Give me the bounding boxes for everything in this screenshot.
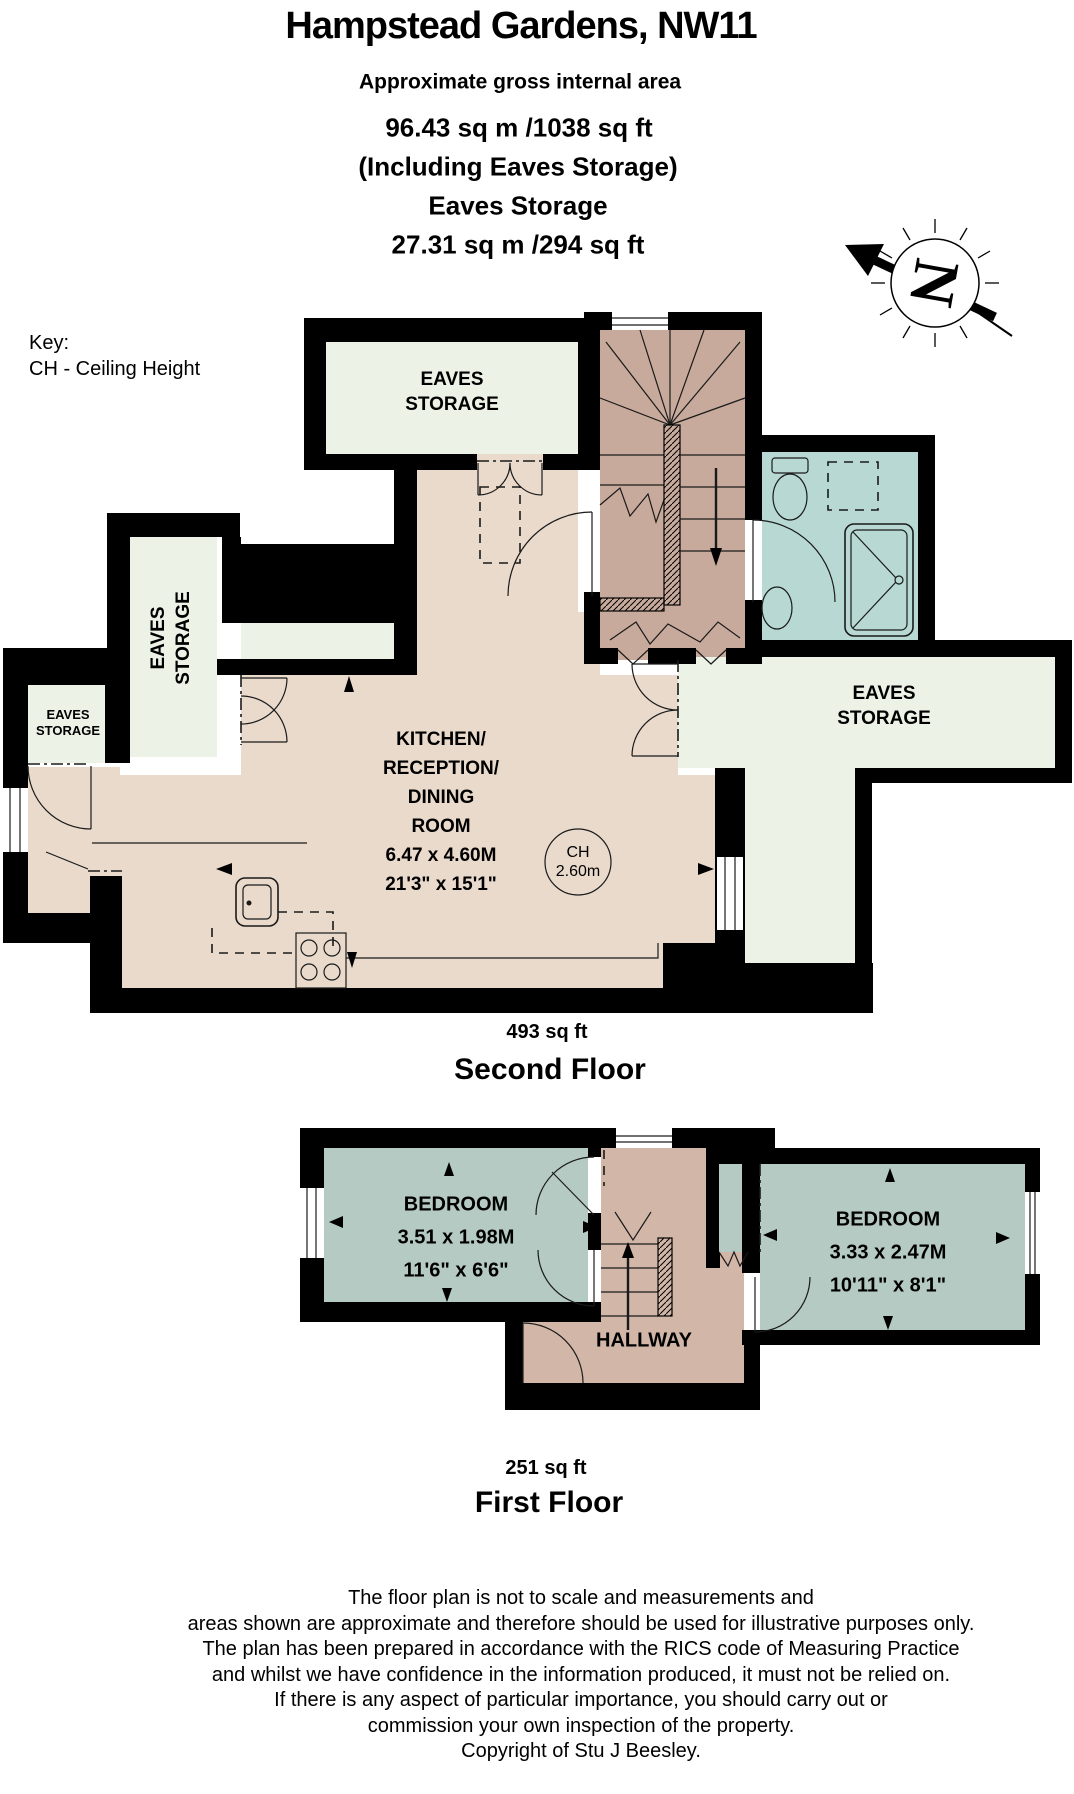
header-subtitle: Approximate gross internal area <box>359 69 681 94</box>
floorplan-drawing: N <box>0 0 1074 1794</box>
legend-key: Key: CH - Ceiling Height <box>29 330 200 382</box>
key-entry: CH - Ceiling Height <box>29 356 200 382</box>
header-including: (Including Eaves Storage) <box>358 151 677 182</box>
second-floor-area: 493 sq ft <box>506 1020 587 1044</box>
label-eaves-storage-top: EAVES STORAGE <box>405 367 499 417</box>
header-eaves-title: Eaves Storage <box>428 190 607 221</box>
north-compass-icon: N <box>845 219 1012 347</box>
second-floor-name: Second Floor <box>454 1052 646 1088</box>
disclaimer-line: The floor plan is not to scale and measu… <box>88 1586 1074 1612</box>
label-eaves-storage-left-small: EAVES STORAGE <box>36 707 100 739</box>
first-floor-name: First Floor <box>475 1485 623 1521</box>
label-kitchen-reception-dining: KITCHEN/ RECEPTION/ DINING ROOM 6.47 x 4… <box>383 725 499 899</box>
stair-window <box>612 312 668 330</box>
disclaimer: The floor plan is not to scale and measu… <box>88 1586 1074 1765</box>
label-bedroom-right: BEDROOM 3.33 x 2.47M 10'11" x 8'1" <box>830 1204 947 1303</box>
disclaimer-line: and whilst we have confidence in the inf… <box>88 1663 1074 1689</box>
right-window-first <box>1025 1192 1040 1274</box>
page-title: Hampstead Gardens, NW11 <box>285 4 756 50</box>
label-bedroom-left: BEDROOM 3.51 x 1.98M 11'6" x 6'6" <box>398 1189 515 1288</box>
copyright-line: Copyright of Stu J Beesley. <box>88 1739 1074 1765</box>
bathroom <box>762 452 918 640</box>
left-window <box>3 788 28 852</box>
disclaimer-line: The plan has been prepared in accordance… <box>88 1637 1074 1663</box>
header-total-area: 96.43 sq m /1038 sq ft <box>385 112 652 143</box>
left-window-first <box>300 1188 324 1258</box>
first-floor-area: 251 sq ft <box>505 1456 586 1480</box>
label-eaves-storage-left-tall: EAVES STORAGE <box>146 591 196 685</box>
disclaimer-line: commission your own inspection of the pr… <box>88 1714 1074 1740</box>
disclaimer-line: areas shown are approximate and therefor… <box>88 1612 1074 1638</box>
key-title: Key: <box>29 330 200 356</box>
stair-window-first <box>616 1130 672 1148</box>
label-ceiling-height: CH 2.60m <box>556 843 600 881</box>
header-eaves-area: 27.31 sq m /294 sq ft <box>392 229 645 260</box>
right-window <box>717 857 743 930</box>
disclaimer-line: If there is any aspect of particular imp… <box>88 1688 1074 1714</box>
label-eaves-storage-right: EAVES STORAGE <box>837 681 931 731</box>
floorplan-page: N Hampstead Gardens, NW11 Approximate gr… <box>0 0 1074 1794</box>
label-hallway: HALLWAY <box>596 1325 692 1358</box>
